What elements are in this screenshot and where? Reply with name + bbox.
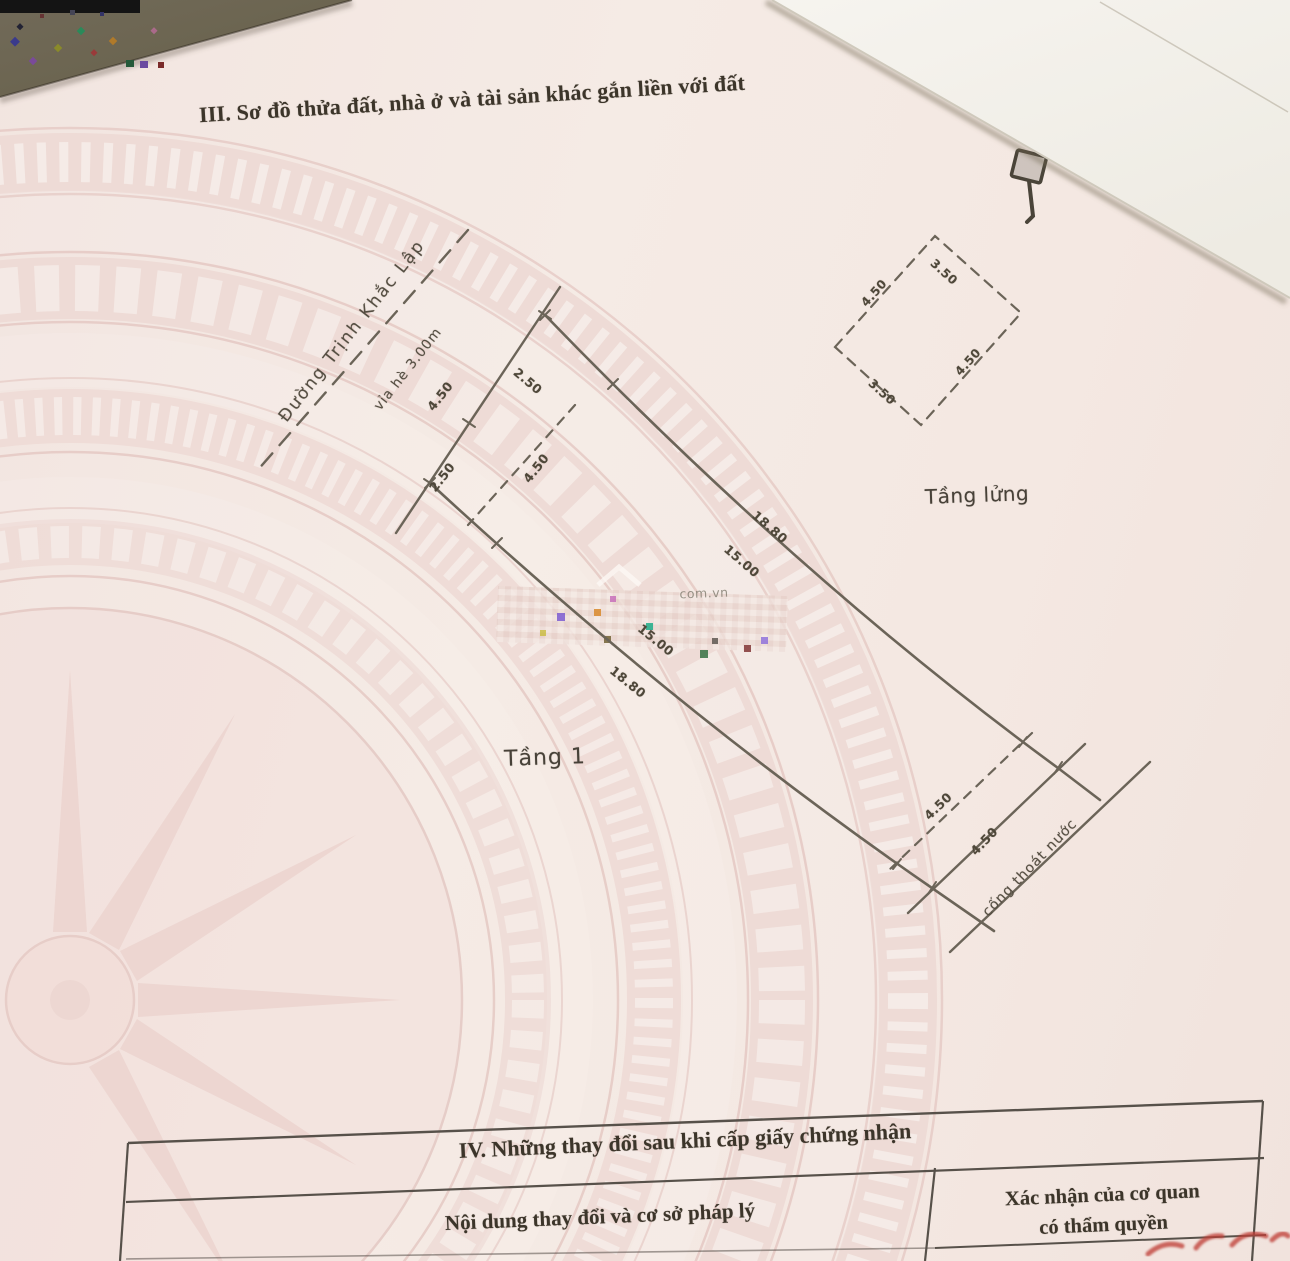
floor1-label: Tầng 1 [504, 744, 587, 772]
photo-desk-wedge [0, 0, 352, 100]
page-corner-overlay [766, 0, 1290, 302]
table-col-confirm: Xác nhận của cơ quan có thẩm quyền [1004, 1177, 1201, 1245]
drum-pattern-background [0, 128, 942, 1261]
mezzanine-label: Tầng lửng [924, 481, 1029, 509]
certificate-photo: III. Sơ đồ thửa đất, nhà ở và tài sản kh… [0, 0, 1290, 1261]
watermark-domain: com.vn [679, 585, 728, 602]
